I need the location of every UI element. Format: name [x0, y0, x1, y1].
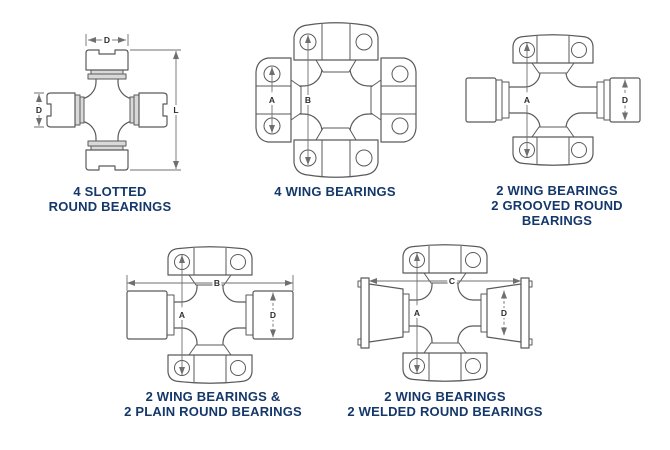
- dim-label-wing-hole-span: A: [269, 95, 275, 105]
- left-flange: [361, 278, 369, 348]
- caption-line: 4 WING BEARINGS: [235, 184, 435, 199]
- left-bearing-collar: [80, 97, 84, 123]
- top-bearing-boss: [532, 63, 574, 73]
- bolt-hole: [392, 66, 408, 82]
- bottom-bearing-boss: [189, 345, 231, 355]
- bolt-hole: [466, 359, 481, 374]
- top-bearing-boss: [424, 273, 466, 283]
- bottom-slotted-bearing: [86, 150, 128, 170]
- caption-line: 2 PLAIN ROUND BEARINGS: [113, 404, 313, 419]
- left-bearing-collar: [403, 294, 409, 332]
- top-slotted-bearing: [86, 50, 128, 70]
- caption-line: 2 GROOVED ROUND BEARINGS: [457, 198, 657, 228]
- left-bearing-collar: [75, 95, 80, 125]
- dim-label-left-diameter: D: [36, 105, 42, 115]
- caption-4-slotted-round-bearings: 4 SLOTTED ROUND BEARINGS: [10, 184, 210, 214]
- left-bearing-boss: [291, 80, 301, 120]
- bearing-types-figure: D D L 4 SLOTTED ROUND BEARINGS: [0, 0, 670, 450]
- cross-body: [508, 67, 598, 133]
- right-bearing-collar: [130, 97, 134, 123]
- dim-label-length: L: [173, 105, 178, 115]
- right-bearing-boss: [371, 80, 381, 120]
- bottom-bearing-boss: [316, 128, 356, 140]
- dim-top-diameter: D: [86, 34, 128, 46]
- caption-line: 2 WING BEARINGS &: [113, 389, 313, 404]
- right-slotted-bearing: [139, 93, 167, 127]
- dim-label-diameter: D: [270, 310, 276, 320]
- dim-label-bearing-span: A: [524, 95, 530, 105]
- dim-label-overall-width: B: [214, 278, 220, 288]
- bottom-bearing-collar: [91, 146, 123, 150]
- bottom-bearing-boss: [424, 343, 466, 353]
- left-plain-bearing: [127, 291, 167, 339]
- left-bearing-collar: [167, 295, 174, 335]
- left-bearing-groove: [502, 82, 509, 118]
- diagram-4-wing-bearings: A B: [244, 14, 429, 186]
- right-bearing-collar: [246, 295, 253, 335]
- bolt-hole: [231, 361, 246, 376]
- bottom-bearing-boss: [532, 127, 574, 137]
- top-bearing-collar: [88, 74, 126, 79]
- dim-label-top-diameter: D: [104, 35, 110, 45]
- dim-label-diameter: D: [501, 308, 507, 318]
- caption-line: ROUND BEARINGS: [10, 199, 210, 214]
- left-grooved-bearing: [466, 78, 496, 122]
- caption-2-wing-2-welded: 2 WING BEARINGS 2 WELDED ROUND BEARINGS: [345, 389, 545, 419]
- bolt-hole: [392, 118, 408, 134]
- top-bearing-boss: [189, 275, 231, 285]
- diagram-2-wing-2-grooved-round-bearings: A D: [456, 27, 646, 177]
- caption-line: 2 WING BEARINGS: [457, 183, 657, 198]
- diagram-4-slotted-round-bearings: D D L: [29, 26, 199, 178]
- dim-label-diameter: D: [622, 95, 628, 105]
- bolt-hole: [572, 43, 587, 58]
- right-bearing-groove: [604, 80, 610, 120]
- cross-body: [77, 78, 137, 142]
- top-bearing-boss: [316, 60, 356, 72]
- bolt-hole: [466, 253, 481, 268]
- diagram-2-wing-2-plain-round-bearings: B A D: [113, 227, 308, 395]
- bolt-hole: [572, 143, 587, 158]
- right-bearing-collar: [481, 294, 487, 332]
- right-bearing-collar: [134, 95, 139, 125]
- left-bearing-groove: [496, 80, 502, 120]
- dim-label-bearing-span: A: [179, 310, 185, 320]
- caption-line: 4 SLOTTED: [10, 184, 210, 199]
- bolt-hole: [356, 150, 372, 166]
- caption-2-wing-2-grooved: 2 WING BEARINGS 2 GROOVED ROUND BEARINGS: [457, 183, 657, 228]
- caption-line: 2 WING BEARINGS: [345, 389, 545, 404]
- diagram-2-wing-2-welded-round-bearings: C A D: [345, 225, 545, 393]
- dim-label-bearing-span: B: [305, 95, 311, 105]
- dim-label-bearing-span: A: [414, 308, 420, 318]
- left-welded-bearing: [369, 284, 403, 342]
- right-flange: [521, 278, 529, 348]
- bottom-bearing-collar: [88, 141, 126, 146]
- dim-label-overall-width: C: [449, 276, 455, 286]
- dim-left-diameter: D: [34, 93, 44, 127]
- left-slotted-bearing: [47, 93, 75, 127]
- caption-2-wing-2-plain: 2 WING BEARINGS & 2 PLAIN ROUND BEARINGS: [113, 389, 313, 419]
- caption-4-wing-bearings: 4 WING BEARINGS: [235, 184, 435, 199]
- right-bearing-groove: [597, 82, 604, 118]
- bolt-hole: [231, 255, 246, 270]
- bolt-hole: [356, 34, 372, 50]
- caption-line: 2 WELDED ROUND BEARINGS: [345, 404, 545, 419]
